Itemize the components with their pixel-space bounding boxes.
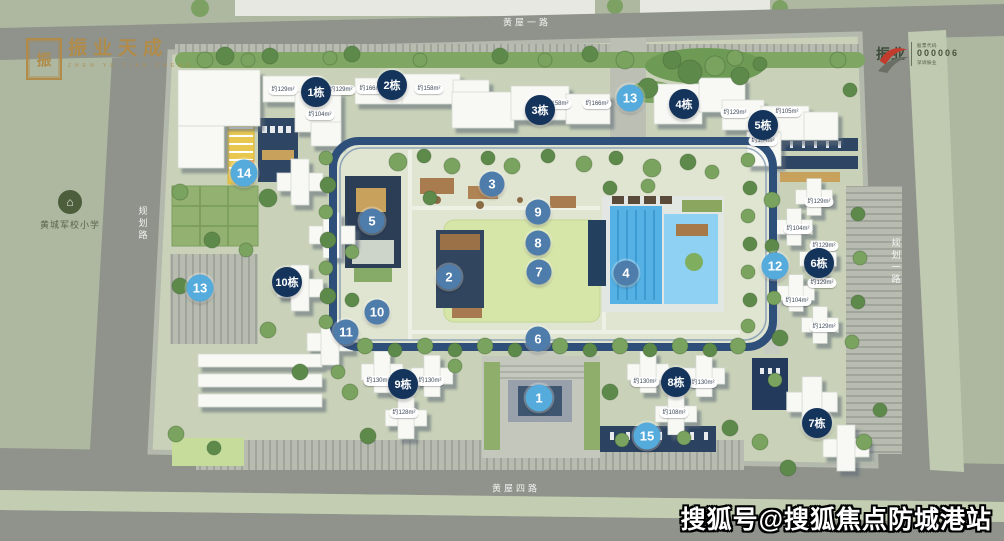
main-entrance	[482, 356, 600, 458]
project-subtitle: ZHEN YE TIAN CHENG	[68, 63, 194, 69]
stock-code: 000006	[917, 48, 959, 59]
swimming-pool	[588, 196, 724, 312]
site-plan-base	[0, 0, 1004, 541]
road-label-top: 黄屋一路	[503, 16, 551, 29]
seal-icon: 振	[26, 38, 62, 80]
road-label-bottom: 黄屋四路	[492, 482, 540, 495]
road-label-left: 规划路	[137, 206, 150, 242]
school-icon: ⌂	[58, 190, 82, 214]
divider	[911, 42, 912, 66]
road-label-right: 规划一路	[890, 238, 903, 286]
school-poi: ⌂ 黄城军校小学	[40, 190, 100, 231]
brand-logo: 振业 股票代码 000006 深圳振业	[876, 42, 959, 66]
watermark: 搜狐号@搜狐焦点防城港站	[681, 500, 992, 536]
kindergarten-building	[228, 118, 254, 184]
school-label: 黄城军校小学	[40, 218, 100, 231]
stock-caption-bottom: 深圳振业	[917, 60, 959, 66]
developer-logo: 振 振业天成 ZHEN YE TIAN CHENG	[26, 38, 194, 80]
site-plan: 约129m²约129m²约166m²约158m²约104m²约158m²约166…	[0, 0, 1004, 541]
project-title: 振业天成	[68, 38, 194, 60]
brand-swoosh-icon	[876, 42, 910, 74]
